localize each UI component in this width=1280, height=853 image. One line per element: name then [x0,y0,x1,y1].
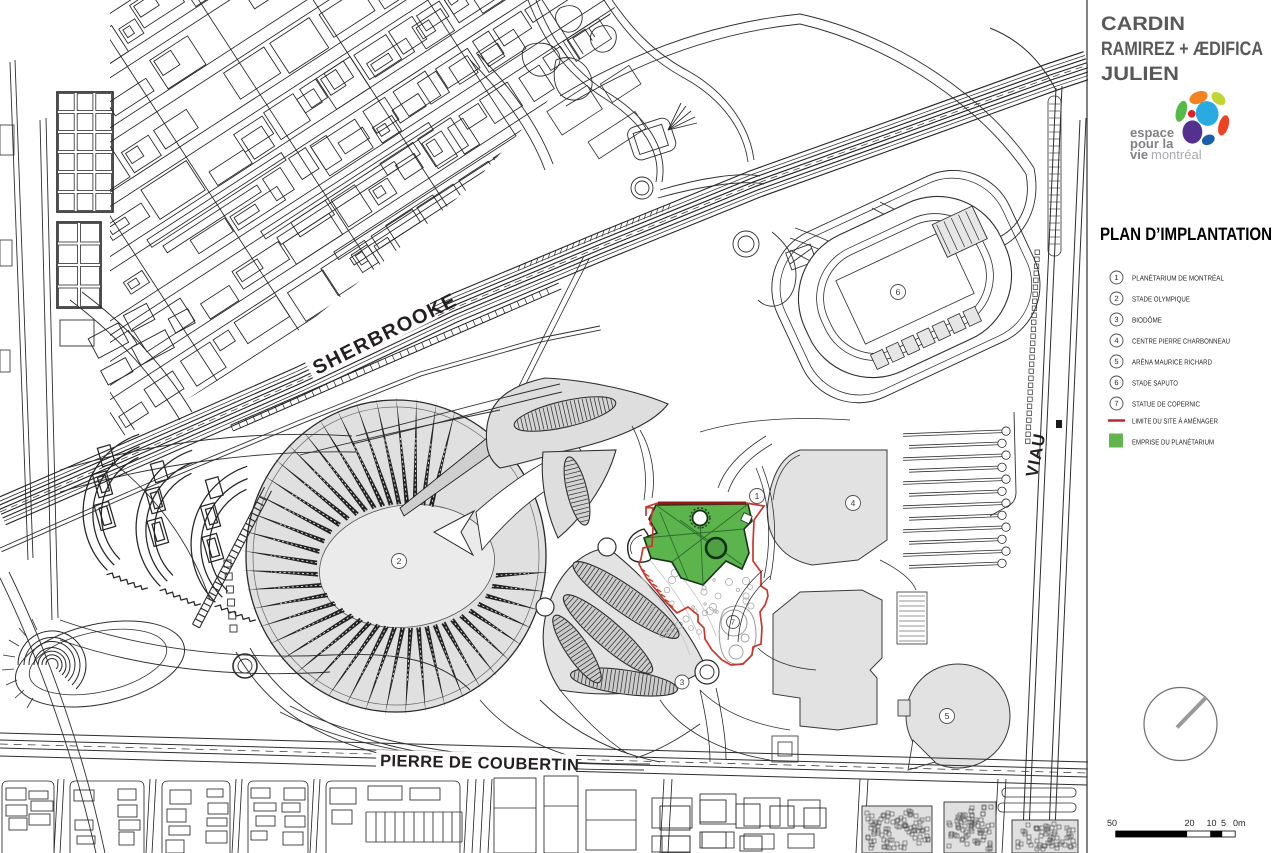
svg-text:10: 10 [1206,818,1216,828]
svg-text:montréal: montréal [1151,147,1202,162]
svg-text:vie: vie [1130,147,1148,162]
svg-text:2: 2 [397,556,402,566]
svg-text:5: 5 [945,711,950,721]
svg-text:PLANÉTARIUM DE MONTRÉAL: PLANÉTARIUM DE MONTRÉAL [1132,273,1224,282]
svg-text:CARDIN: CARDIN [1101,13,1185,35]
svg-text:6: 6 [896,287,901,297]
svg-text:2: 2 [1114,294,1118,303]
svg-text:RAMIREZ + ÆDIFICA: RAMIREZ + ÆDIFICA [1101,38,1263,60]
svg-text:BIODÔME: BIODÔME [1132,315,1162,324]
svg-text:STATUE DE COPERNIC: STATUE DE COPERNIC [1132,399,1200,408]
svg-text:6: 6 [1114,378,1118,387]
svg-text:4: 4 [851,498,856,508]
svg-text:50: 50 [1107,818,1117,828]
svg-text:4: 4 [1114,336,1118,345]
svg-text:ARÉNA MAURICE RICHARD: ARÉNA MAURICE RICHARD [1132,357,1212,366]
svg-text:3: 3 [680,678,685,687]
svg-text:CENTRE PIERRE CHARBONNEAU: CENTRE PIERRE CHARBONNEAU [1132,336,1230,345]
svg-text:7: 7 [1114,399,1118,408]
svg-text:3: 3 [1114,315,1118,324]
svg-text:5: 5 [1221,818,1226,828]
svg-text:STADE SAPUTO: STADE SAPUTO [1132,378,1178,387]
svg-text:20: 20 [1184,818,1194,828]
svg-text:PLAN D’IMPLANTATION: PLAN D’IMPLANTATION [1100,224,1272,244]
svg-text:EMPRISE DU PLANÉTARIUM: EMPRISE DU PLANÉTARIUM [1132,437,1214,446]
svg-text:STADE OLYMPIQUE: STADE OLYMPIQUE [1132,294,1190,303]
svg-text:5: 5 [1114,357,1118,366]
svg-text:1: 1 [1114,273,1118,282]
svg-text:LIMITE DU SITE À AMÉNAGER: LIMITE DU SITE À AMÉNAGER [1132,416,1218,425]
svg-text:1: 1 [755,491,760,501]
svg-text:0m: 0m [1233,818,1246,828]
svg-text:JULIEN: JULIEN [1101,63,1179,85]
